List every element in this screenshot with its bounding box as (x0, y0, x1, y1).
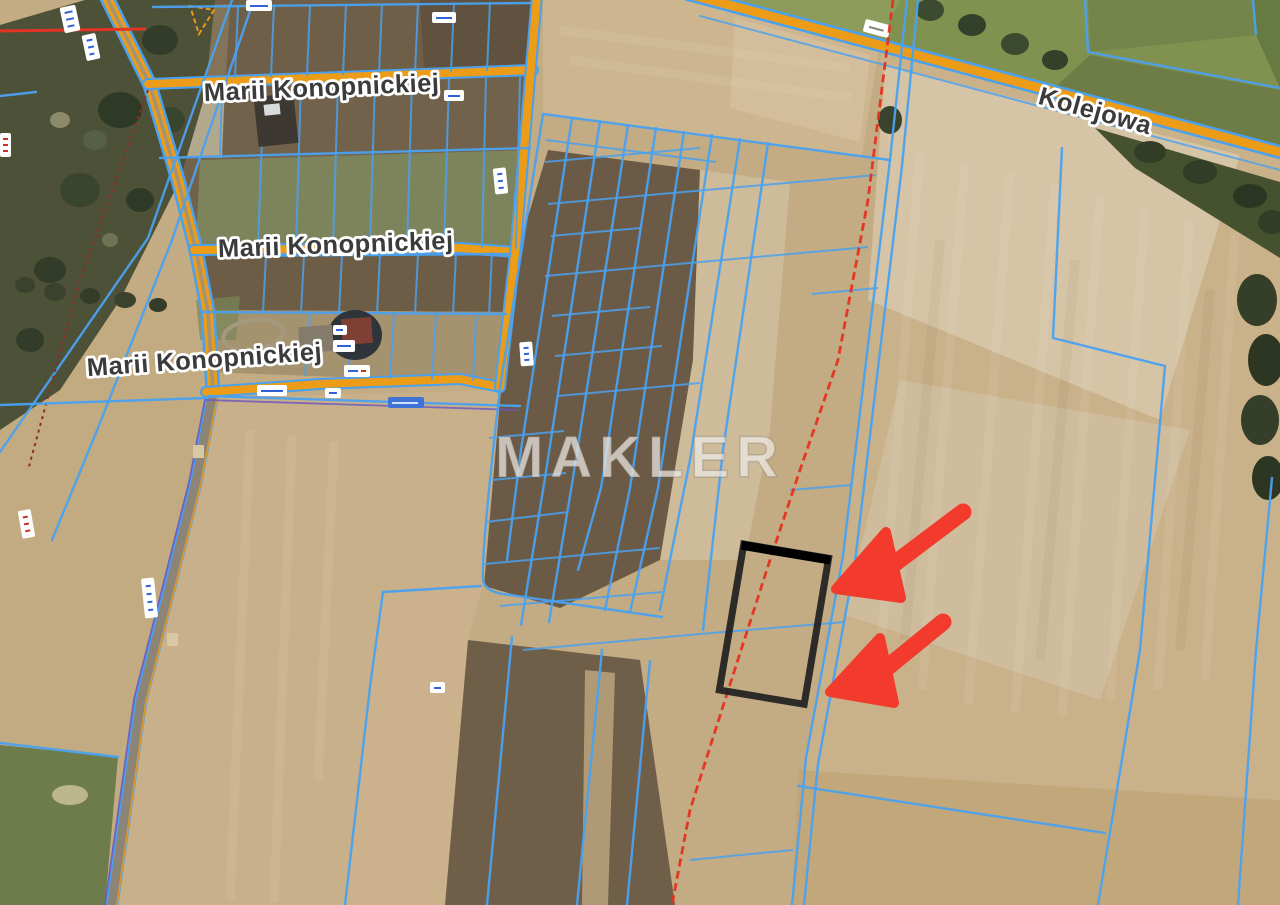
map-screenshot: Marii Konopnickiej Marii Konopnickiej Ma… (0, 0, 1280, 905)
watermark-text: MAKLER (495, 425, 785, 490)
satellite-cadastral-map: Marii Konopnickiej Marii Konopnickiej Ma… (0, 0, 1280, 905)
